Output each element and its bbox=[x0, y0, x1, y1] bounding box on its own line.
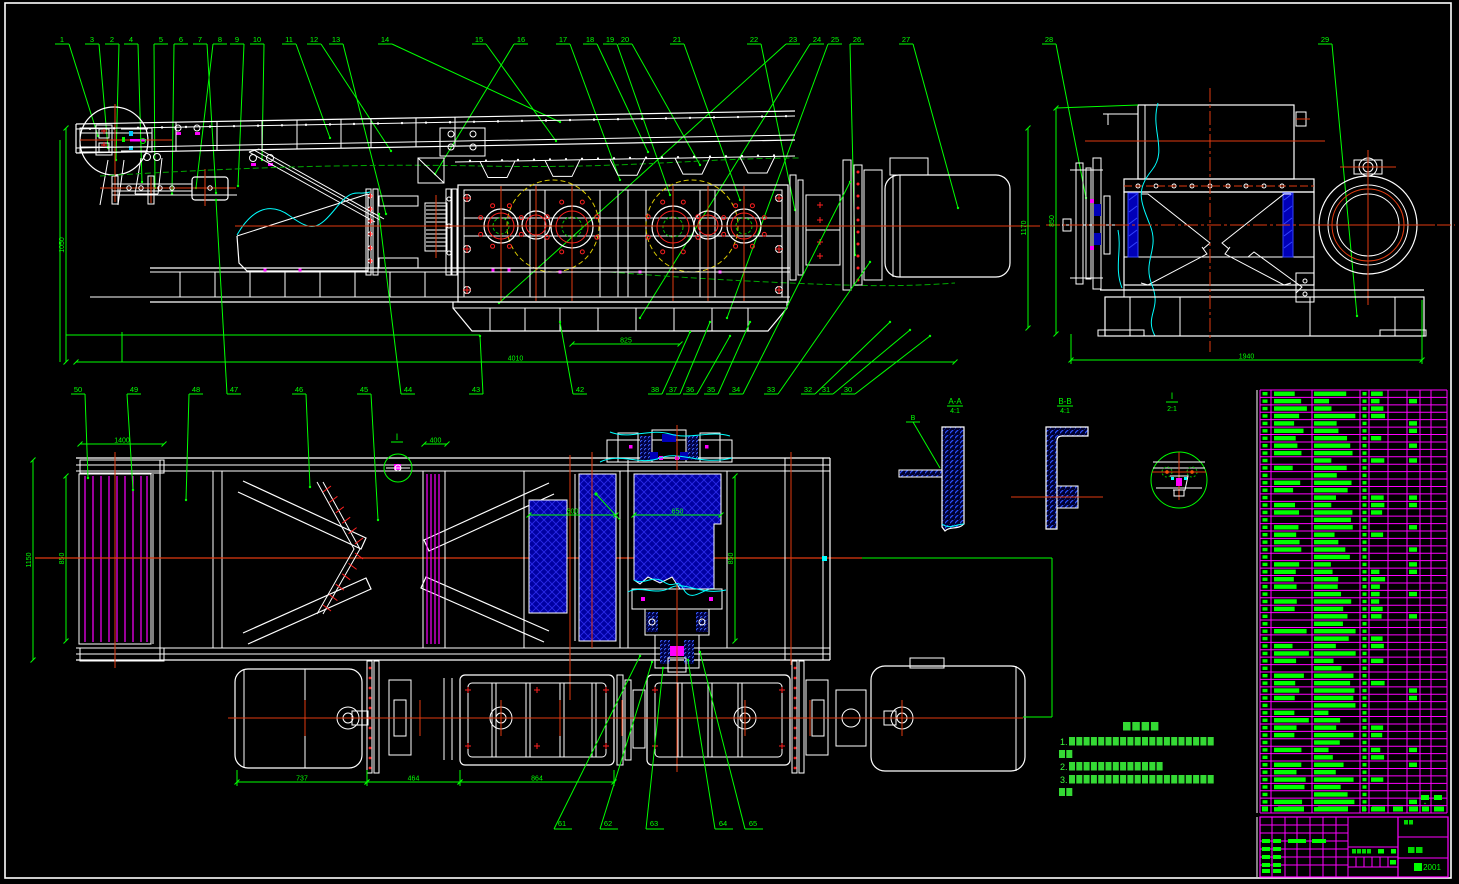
svg-text:1150: 1150 bbox=[26, 552, 33, 567]
svg-text:26: 26 bbox=[853, 35, 861, 44]
svg-text:46: 46 bbox=[295, 385, 303, 394]
svg-text:2:1: 2:1 bbox=[1167, 406, 1177, 413]
svg-text:1940: 1940 bbox=[1239, 354, 1255, 361]
svg-text:4:1: 4:1 bbox=[950, 408, 960, 415]
svg-text:43: 43 bbox=[472, 385, 480, 394]
svg-text:650: 650 bbox=[672, 509, 684, 516]
svg-text:30: 30 bbox=[844, 385, 852, 394]
svg-text:4: 4 bbox=[129, 35, 133, 44]
svg-text:737: 737 bbox=[296, 776, 308, 783]
svg-text:37: 37 bbox=[669, 385, 677, 394]
svg-text:850: 850 bbox=[1049, 215, 1056, 227]
svg-text:400: 400 bbox=[430, 438, 442, 445]
svg-text:3: 3 bbox=[90, 35, 94, 44]
svg-text:49: 49 bbox=[130, 385, 138, 394]
svg-text:45: 45 bbox=[360, 385, 368, 394]
svg-text:1.: 1. bbox=[1060, 737, 1068, 747]
svg-text:7: 7 bbox=[198, 35, 202, 44]
svg-text:18: 18 bbox=[586, 35, 594, 44]
svg-text:6: 6 bbox=[179, 35, 183, 44]
svg-text:4:1: 4:1 bbox=[1060, 408, 1070, 415]
svg-text:44: 44 bbox=[404, 385, 412, 394]
svg-text:2001: 2001 bbox=[1423, 863, 1441, 872]
svg-text:15: 15 bbox=[475, 35, 483, 44]
svg-text:2.: 2. bbox=[1060, 762, 1068, 772]
svg-text:50: 50 bbox=[74, 385, 82, 394]
svg-text:B-B: B-B bbox=[1058, 397, 1071, 406]
svg-text:35: 35 bbox=[707, 385, 715, 394]
svg-text:12: 12 bbox=[310, 35, 318, 44]
svg-text:24: 24 bbox=[813, 35, 821, 44]
svg-text:33: 33 bbox=[767, 385, 775, 394]
svg-text:▪: ▪ bbox=[1424, 801, 1426, 807]
svg-text:23: 23 bbox=[789, 35, 797, 44]
svg-text:1: 1 bbox=[60, 35, 64, 44]
svg-text:64: 64 bbox=[719, 819, 727, 828]
svg-text:22: 22 bbox=[750, 35, 758, 44]
svg-text:5: 5 bbox=[159, 35, 163, 44]
svg-text:864: 864 bbox=[531, 776, 543, 783]
svg-text:600: 600 bbox=[567, 509, 579, 516]
svg-text:13: 13 bbox=[332, 35, 340, 44]
svg-text:38: 38 bbox=[651, 385, 659, 394]
svg-text:47: 47 bbox=[230, 385, 238, 394]
svg-text:11: 11 bbox=[285, 35, 293, 44]
svg-text:I: I bbox=[396, 432, 399, 442]
svg-text:464: 464 bbox=[408, 776, 420, 783]
svg-text:29: 29 bbox=[1321, 35, 1329, 44]
svg-text:34: 34 bbox=[732, 385, 740, 394]
svg-text:16: 16 bbox=[517, 35, 525, 44]
svg-text:8: 8 bbox=[218, 35, 222, 44]
svg-text:9: 9 bbox=[235, 35, 239, 44]
svg-text:1400: 1400 bbox=[114, 438, 130, 445]
svg-text:25: 25 bbox=[831, 35, 839, 44]
svg-text:850: 850 bbox=[728, 553, 735, 565]
svg-text:21: 21 bbox=[673, 35, 681, 44]
svg-text:2: 2 bbox=[110, 35, 114, 44]
svg-text:31: 31 bbox=[822, 385, 830, 394]
svg-text:A-A: A-A bbox=[948, 397, 962, 406]
svg-text:63: 63 bbox=[650, 819, 658, 828]
svg-text:62: 62 bbox=[604, 819, 612, 828]
svg-text:10: 10 bbox=[253, 35, 261, 44]
svg-text:42: 42 bbox=[576, 385, 584, 394]
svg-text:28: 28 bbox=[1045, 35, 1053, 44]
svg-text:I: I bbox=[1171, 391, 1174, 401]
svg-text:65: 65 bbox=[749, 819, 757, 828]
svg-text:20: 20 bbox=[621, 35, 629, 44]
svg-text:32: 32 bbox=[804, 385, 812, 394]
svg-text:B: B bbox=[911, 415, 916, 422]
svg-text:36: 36 bbox=[686, 385, 694, 394]
svg-text:19: 19 bbox=[606, 35, 614, 44]
svg-text:17: 17 bbox=[559, 35, 567, 44]
svg-text:61: 61 bbox=[558, 819, 566, 828]
svg-text:14: 14 bbox=[381, 35, 389, 44]
svg-text:27: 27 bbox=[902, 35, 910, 44]
svg-text:48: 48 bbox=[192, 385, 200, 394]
svg-text:3.: 3. bbox=[1060, 775, 1068, 785]
svg-text:4010: 4010 bbox=[508, 356, 524, 363]
svg-text:1170: 1170 bbox=[1021, 220, 1028, 235]
svg-text:825: 825 bbox=[620, 338, 632, 345]
